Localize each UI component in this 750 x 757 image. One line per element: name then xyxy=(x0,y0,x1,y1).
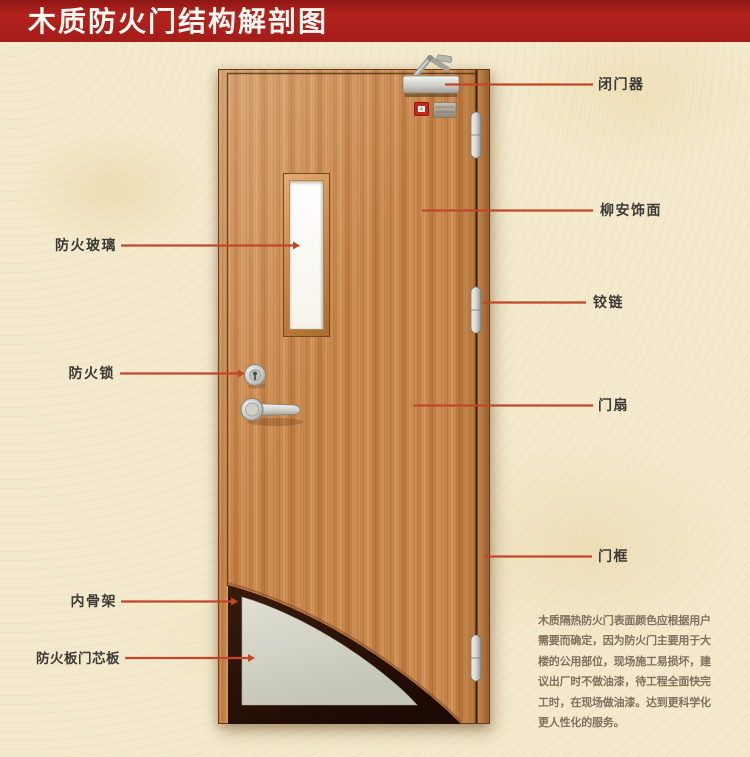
label-door-closer: 闭门器 xyxy=(598,77,645,93)
label-fire-board-core: 防火板门芯板 xyxy=(36,651,120,667)
description-paragraph: 木质隔热防火门表面颜色应根据用户 需要而确定，因为防火门主要用于大 楼的公用部位… xyxy=(538,611,723,733)
arrowhead-fire-glass xyxy=(293,242,300,250)
panel-inset-line xyxy=(228,74,477,587)
callout-lines xyxy=(120,85,593,659)
label-hinge: 铰链 xyxy=(593,295,624,311)
description-line: 需要而确定，因为防火门主要用于大 xyxy=(538,631,723,651)
label-door-leaf: 门扇 xyxy=(598,398,629,414)
description-line: 议出厂时不做油漆，待工程全面快完 xyxy=(538,672,723,692)
description-line: 更人性化的服务。 xyxy=(538,713,723,733)
label-inner-skeleton: 内骨架 xyxy=(71,594,118,610)
door-closer xyxy=(403,54,459,97)
top-hinge xyxy=(471,112,481,158)
bottom-hinge xyxy=(471,635,481,681)
label-fire-lock: 防火锁 xyxy=(69,366,116,382)
description-line: 楼的公用部位，现场施工易损坏，建 xyxy=(538,652,723,672)
strike-plate xyxy=(434,103,457,118)
middle-hinge xyxy=(471,287,481,333)
description-line: 木质隔热防火门表面颜色应根据用户 xyxy=(538,611,723,631)
description-line: 工时，在现场做油漆。达到更科学化 xyxy=(538,693,723,713)
door-handle xyxy=(241,399,303,427)
diagram-canvas: 木质防火门结构解剖图 xyxy=(0,0,750,757)
arrowhead-fire-lock xyxy=(238,370,245,378)
fire-board-core-panel xyxy=(242,597,417,705)
label-lauan-veneer: 柳安饰面 xyxy=(600,203,662,219)
label-door-frame: 门框 xyxy=(598,549,629,565)
lock-cylinder xyxy=(245,365,267,389)
label-fire-glass: 防火玻璃 xyxy=(55,238,117,254)
status-indicator xyxy=(415,103,429,116)
